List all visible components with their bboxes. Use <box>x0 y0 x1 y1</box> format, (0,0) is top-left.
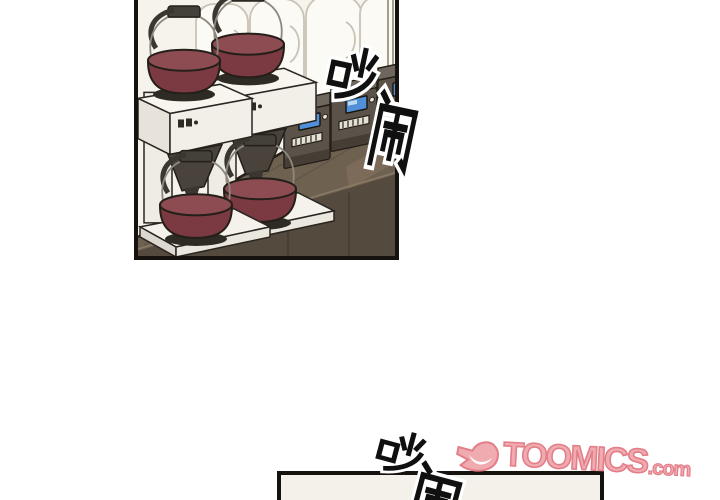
coffee-grinder-middle <box>331 76 377 152</box>
comic-panel-top <box>134 0 399 260</box>
comic-page: TOOMICS .com <box>0 0 720 500</box>
coffee-machines-illustration <box>138 0 395 256</box>
toomics-mask-icon <box>454 437 502 475</box>
watermark-brand: TOOMICS <box>502 437 648 478</box>
watermark-domain: .com <box>647 458 691 480</box>
coffee-grinder-right <box>378 58 395 134</box>
